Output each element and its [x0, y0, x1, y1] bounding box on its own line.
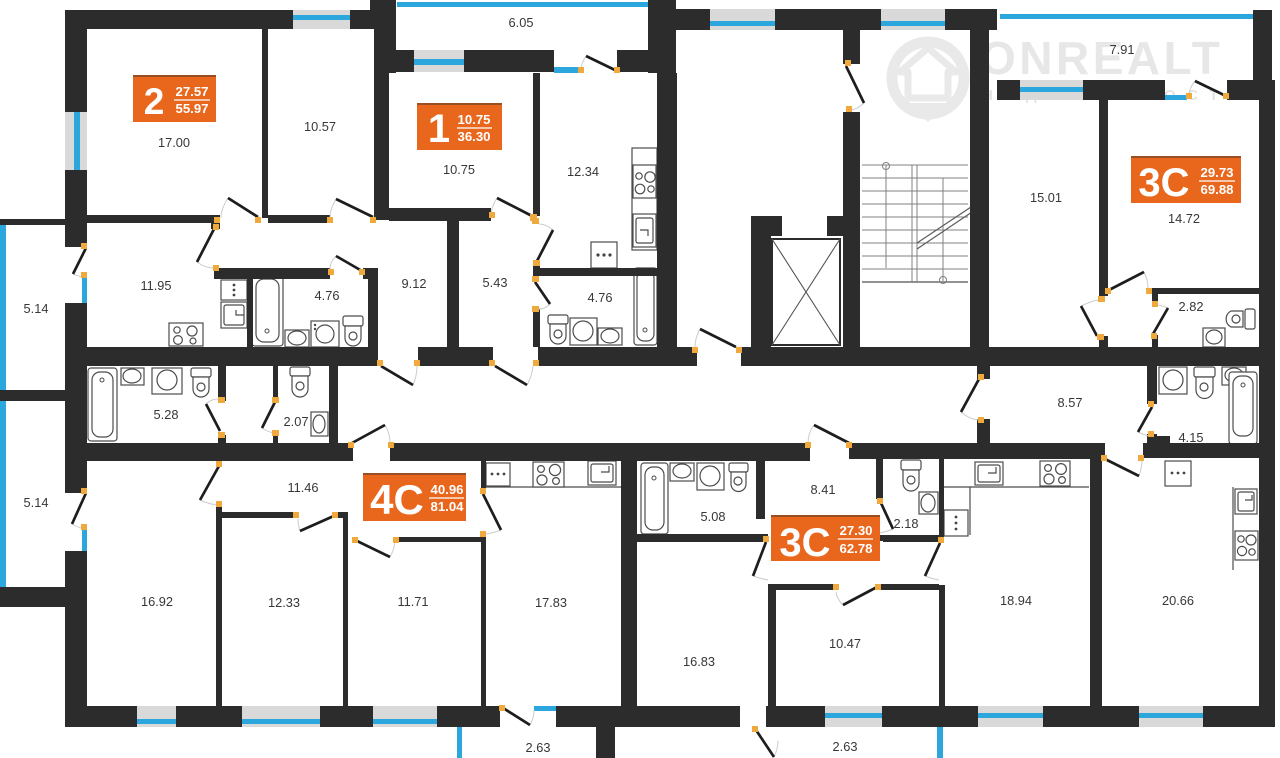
svg-text:2: 2 — [144, 81, 165, 122]
svg-text:11.71: 11.71 — [397, 594, 428, 609]
svg-text:11.46: 11.46 — [287, 480, 318, 495]
svg-text:10.57: 10.57 — [304, 119, 336, 134]
svg-text:2.18: 2.18 — [894, 516, 919, 531]
svg-text:10.75: 10.75 — [443, 162, 475, 177]
svg-text:8.57: 8.57 — [1058, 395, 1083, 410]
svg-text:27.57: 27.57 — [175, 84, 208, 99]
svg-text:5.08: 5.08 — [701, 509, 726, 524]
svg-text:4.76: 4.76 — [315, 288, 340, 303]
svg-text:62.78: 62.78 — [839, 541, 872, 556]
svg-text:1: 1 — [428, 107, 450, 151]
svg-text:18.94: 18.94 — [1000, 593, 1032, 608]
svg-text:5.14: 5.14 — [24, 495, 49, 510]
svg-text:2.63: 2.63 — [833, 739, 858, 754]
svg-text:7.91: 7.91 — [1110, 42, 1135, 57]
svg-text:29.73: 29.73 — [1200, 165, 1233, 180]
svg-text:2.82: 2.82 — [1179, 299, 1204, 314]
svg-text:10.75: 10.75 — [457, 112, 490, 127]
svg-text:16.92: 16.92 — [141, 594, 173, 609]
svg-text:14.72: 14.72 — [1168, 211, 1200, 226]
svg-text:12.33: 12.33 — [268, 595, 300, 610]
svg-text:17.00: 17.00 — [158, 135, 190, 150]
svg-text:3C: 3C — [1138, 161, 1189, 205]
svg-text:11.95: 11.95 — [140, 278, 171, 293]
svg-text:81.04: 81.04 — [430, 499, 464, 514]
svg-text:8.41: 8.41 — [811, 482, 836, 497]
svg-text:2.63: 2.63 — [526, 740, 551, 755]
svg-text:5.43: 5.43 — [483, 275, 508, 290]
svg-text:15.01: 15.01 — [1030, 190, 1062, 205]
svg-text:ONREALT: ONREALT — [980, 32, 1223, 84]
svg-text:5.28: 5.28 — [154, 407, 179, 422]
svg-text:20.66: 20.66 — [1162, 593, 1194, 608]
svg-text:3C: 3C — [779, 521, 830, 565]
svg-text:6.05: 6.05 — [509, 15, 534, 30]
svg-text:55.97: 55.97 — [175, 101, 208, 116]
svg-text:27.30: 27.30 — [839, 523, 872, 538]
svg-text:4.15: 4.15 — [1179, 430, 1204, 445]
svg-text:4.76: 4.76 — [588, 290, 613, 305]
svg-text:4C: 4C — [370, 476, 424, 523]
svg-text:40.96: 40.96 — [430, 482, 463, 497]
svg-text:12.34: 12.34 — [567, 164, 599, 179]
svg-text:10.47: 10.47 — [829, 636, 861, 651]
svg-text:9.12: 9.12 — [402, 276, 427, 291]
svg-text:17.83: 17.83 — [535, 595, 567, 610]
svg-text:2.07: 2.07 — [284, 414, 309, 429]
svg-text:16.83: 16.83 — [683, 654, 715, 669]
svg-text:5.14: 5.14 — [24, 301, 49, 316]
svg-text:36.30: 36.30 — [457, 129, 490, 144]
svg-text:69.88: 69.88 — [1200, 182, 1233, 197]
